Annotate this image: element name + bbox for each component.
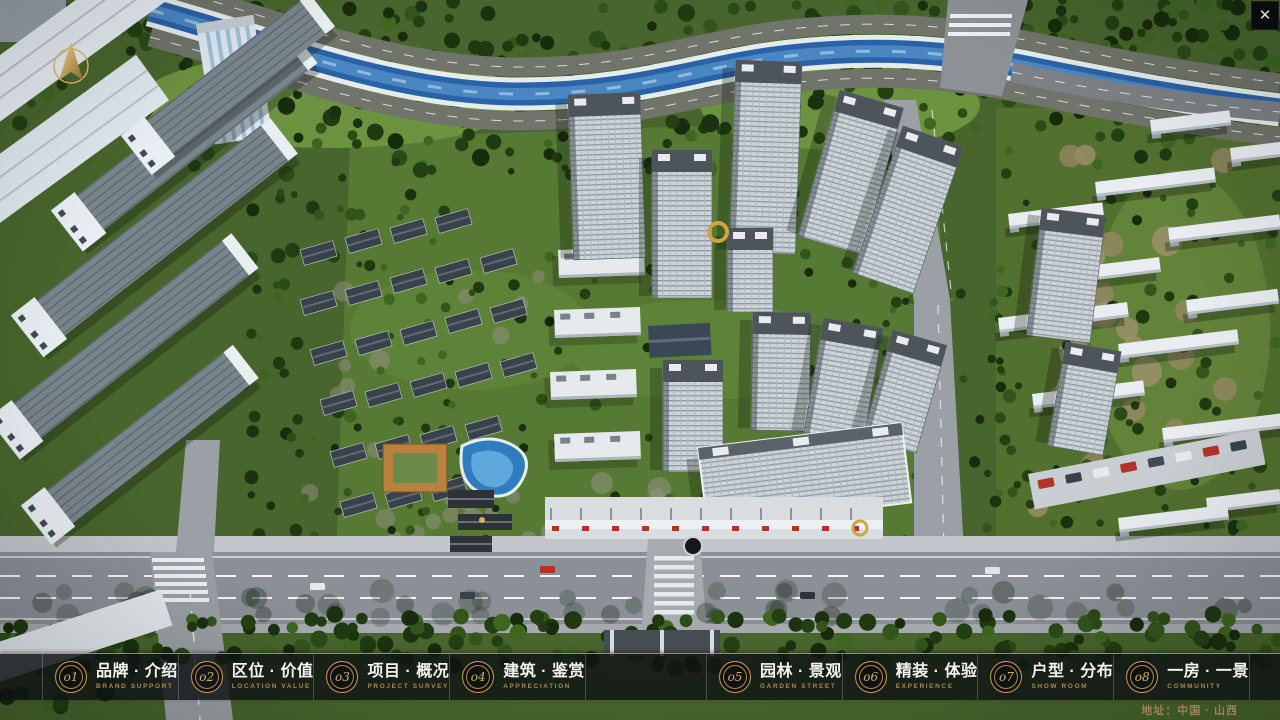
- address-text: 地址：中国 · 山西: [1141, 702, 1238, 718]
- menu-group-right: o5 园林 · 景观 GARDEN STREET o6 精装 · 体验 EXPE…: [706, 654, 1245, 700]
- menu-item-views[interactable]: o8 一房 · 一景 COMMUNITY: [1113, 654, 1250, 700]
- menu-item-title: 区位 · 价值: [232, 664, 314, 681]
- menu-item-title: 建筑 · 鉴赏: [503, 664, 585, 681]
- close-button[interactable]: ✕: [1251, 1, 1279, 30]
- menu-item-subtitle: LOCATION VALUE: [232, 683, 314, 690]
- menu-item-title: 园林 · 景观: [760, 664, 842, 681]
- menu-item-architecture[interactable]: o4 建筑 · 鉴赏 APPRECIATION: [449, 654, 586, 700]
- menu-item-subtitle: APPRECIATION: [503, 683, 585, 690]
- presentation-stage: ✕ o1 品牌 · 介绍 BRAND SUPPORT o2 区位 · 价值 LO…: [0, 0, 1280, 720]
- menu-number-badge: o8: [1126, 661, 1158, 693]
- menu-item-title: 项目 · 概况: [367, 664, 449, 681]
- menu-item-subtitle: BRAND SUPPORT: [96, 683, 178, 690]
- menu-number-badge: o3: [326, 661, 358, 693]
- menu-number-badge: o1: [55, 661, 87, 693]
- menu-item-floorplan[interactable]: o7 户型 · 分布 SHOW ROOM: [977, 654, 1113, 700]
- menu-item-title: 一房 · 一景: [1167, 664, 1249, 681]
- menu-item-project[interactable]: o3 项目 · 概况 PROJECT SURVEY: [313, 654, 449, 700]
- menu-number-badge: o5: [719, 661, 751, 693]
- menu-item-title: 品牌 · 介绍: [96, 664, 178, 681]
- menu-number-badge: o6: [855, 661, 887, 693]
- menu-item-subtitle: EXPERIENCE: [896, 683, 978, 690]
- menu-item-title: 户型 · 分布: [1031, 664, 1113, 681]
- menu-item-subtitle: GARDEN STREET: [760, 683, 842, 690]
- menu-item-garden[interactable]: o5 园林 · 景观 GARDEN STREET: [706, 654, 842, 700]
- menu-group-left: o1 品牌 · 介绍 BRAND SUPPORT o2 区位 · 价值 LOCA…: [42, 654, 578, 700]
- menu-item-subtitle: COMMUNITY: [1167, 683, 1249, 690]
- compass-icon: [42, 36, 100, 94]
- menu-item-interior[interactable]: o6 精装 · 体验 EXPERIENCE: [842, 654, 978, 700]
- menu-item-brand[interactable]: o1 品牌 · 介绍 BRAND SUPPORT: [42, 654, 178, 700]
- menu-item-location[interactable]: o2 区位 · 价值 LOCATION VALUE: [178, 654, 314, 700]
- menu-number-badge: o4: [462, 661, 494, 693]
- menu-number-badge: o2: [191, 661, 223, 693]
- map-view[interactable]: [0, 0, 1280, 720]
- menu-item-title: 精装 · 体验: [896, 664, 978, 681]
- menu-item-subtitle: PROJECT SURVEY: [367, 683, 449, 690]
- menu-number-badge: o7: [990, 661, 1022, 693]
- bottom-menu-bar: o1 品牌 · 介绍 BRAND SUPPORT o2 区位 · 价值 LOCA…: [0, 653, 1280, 700]
- menu-item-subtitle: SHOW ROOM: [1031, 683, 1113, 690]
